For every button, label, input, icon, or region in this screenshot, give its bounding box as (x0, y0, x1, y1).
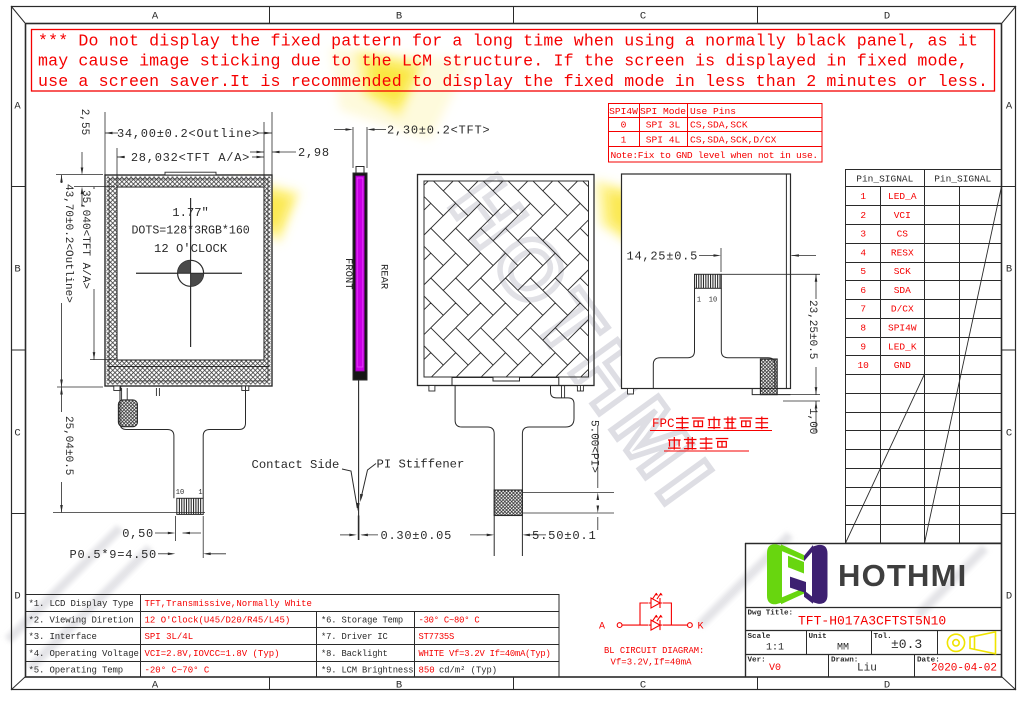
svg-text:10: 10 (857, 360, 869, 371)
svg-text:RESX: RESX (891, 247, 914, 258)
svg-text:C: C (1006, 428, 1012, 440)
svg-text:0,50: 0,50 (122, 527, 154, 541)
svg-text:Vf=3.2V,If=40mA: Vf=3.2V,If=40mA (611, 658, 693, 668)
svg-text:A: A (599, 622, 605, 633)
svg-text:SPI4W: SPI4W (609, 106, 638, 117)
svg-text:8: 8 (860, 323, 866, 334)
svg-text:*9. LCM Brightness: *9. LCM Brightness (321, 665, 413, 675)
svg-text:D: D (884, 680, 890, 692)
svg-text:SPI4W: SPI4W (888, 323, 917, 334)
svg-text:GND: GND (894, 360, 911, 371)
svg-text:*8. Backlight: *8. Backlight (321, 649, 388, 659)
svg-text:1: 1 (621, 135, 627, 146)
svg-text:23,25±0.5: 23,25±0.5 (806, 300, 818, 359)
svg-text:10: 10 (709, 297, 717, 305)
svg-text:MM: MM (837, 643, 849, 654)
svg-text:Scale: Scale (748, 633, 771, 641)
svg-text:B: B (14, 264, 20, 276)
svg-text:CS: CS (897, 229, 909, 240)
svg-text:SDA: SDA (894, 285, 911, 296)
svg-text:V0: V0 (769, 663, 781, 674)
svg-text:1: 1 (198, 489, 202, 497)
svg-text:Dwg Title:: Dwg Title: (748, 610, 794, 618)
svg-text:*** Do not display the fixed p: *** Do not display the fixed pattern for… (38, 32, 978, 51)
svg-text:BL CIRCUIT DIAGRAM:: BL CIRCUIT DIAGRAM: (604, 646, 704, 656)
svg-text:3: 3 (860, 229, 866, 240)
svg-text:Ver:: Ver: (748, 657, 766, 665)
svg-text:Use Pins: Use Pins (690, 106, 736, 117)
svg-text:2,98: 2,98 (298, 146, 330, 160)
svg-text:Drawn:: Drawn: (831, 657, 858, 665)
svg-text:5.00<PI>: 5.00<PI> (588, 420, 600, 473)
svg-text:FRONT: FRONT (342, 258, 354, 290)
svg-text:Note:Fix to GND level when not: Note:Fix to GND level when not in use. (611, 150, 818, 161)
svg-text:*6. Storage Temp: *6. Storage Temp (321, 616, 403, 626)
svg-text:SCK: SCK (894, 266, 911, 277)
svg-text:*5. Operating Temp: *5. Operating Temp (29, 665, 124, 675)
svg-text:14,25±0.5: 14,25±0.5 (627, 250, 699, 264)
svg-text:VCI: VCI (894, 210, 911, 221)
svg-text:A: A (152, 680, 159, 692)
svg-text:25,04±0.5: 25,04±0.5 (62, 416, 74, 475)
svg-text:B: B (396, 11, 402, 23)
svg-text:1,00: 1,00 (806, 408, 818, 434)
svg-text:cd/m² (Typ): cd/m² (Typ) (439, 665, 497, 675)
svg-text:0.30±0.05: 0.30±0.05 (381, 529, 453, 543)
svg-text:A: A (14, 101, 21, 113)
svg-text:850: 850 (419, 665, 435, 675)
svg-text:1: 1 (697, 297, 701, 305)
svg-text:LED_A: LED_A (888, 191, 917, 202)
svg-text:2020-04-02: 2020-04-02 (931, 663, 997, 675)
svg-text:4: 4 (860, 247, 866, 258)
svg-text:Unit: Unit (809, 633, 827, 641)
svg-text:*3. Interface: *3. Interface (29, 632, 97, 642)
svg-text:PI Stiffener: PI Stiffener (377, 458, 465, 472)
svg-text:12 O'Clock(U45/D20/R45/L45): 12 O'Clock(U45/D20/R45/L45) (145, 616, 291, 626)
svg-text:HOTHMI: HOTHMI (838, 558, 967, 593)
svg-text:Tol.: Tol. (874, 633, 892, 641)
svg-text:1:1: 1:1 (766, 643, 784, 654)
svg-text:VCI=2.8V,IOVCC=1.8V (Typ): VCI=2.8V,IOVCC=1.8V (Typ) (145, 649, 280, 659)
svg-text:7: 7 (860, 304, 866, 315)
svg-text:Contact Side: Contact Side (252, 458, 340, 472)
svg-text:SPI Mode: SPI Mode (640, 106, 686, 117)
svg-text:D/CX: D/CX (891, 304, 914, 315)
svg-text:C: C (640, 11, 646, 23)
svg-text:ST7735S: ST7735S (419, 632, 455, 642)
svg-text:10: 10 (176, 489, 184, 497)
svg-text:C: C (640, 680, 646, 692)
svg-text:5: 5 (860, 266, 866, 277)
svg-text:A: A (1006, 101, 1013, 113)
svg-text:Pin_SIGNAL: Pin_SIGNAL (934, 174, 991, 185)
svg-text:A: A (152, 11, 159, 23)
svg-text:SPI 3L: SPI 3L (646, 120, 681, 131)
svg-text:D: D (14, 591, 20, 603)
svg-text:28,032<TFT A/A>: 28,032<TFT A/A> (131, 151, 250, 165)
svg-text:9: 9 (860, 341, 866, 352)
svg-text:TFT,Transmissive,Normally Whit: TFT,Transmissive,Normally White (145, 599, 312, 609)
svg-text:±0.3: ±0.3 (891, 637, 922, 652)
svg-text:*2. Viewing Diretion: *2. Viewing Diretion (29, 616, 134, 626)
svg-text:P0.5*9=4.50: P0.5*9=4.50 (70, 548, 157, 562)
svg-text:D: D (884, 11, 890, 23)
svg-text:43,70±0.2<Outline>: 43,70±0.2<Outline> (62, 184, 74, 303)
svg-text:Liu: Liu (857, 663, 877, 675)
svg-text:*4. Operating Voltage: *4. Operating Voltage (29, 649, 139, 659)
svg-text:D: D (1006, 591, 1012, 603)
svg-text:Pin_SIGNAL: Pin_SIGNAL (856, 174, 913, 185)
svg-text:*1. LCD Display Type: *1. LCD Display Type (29, 599, 134, 609)
svg-text:2,30±0.2<TFT>: 2,30±0.2<TFT> (387, 124, 490, 138)
svg-text:*7. Driver IC: *7. Driver IC (321, 632, 388, 642)
svg-text:1: 1 (860, 191, 866, 202)
svg-text:TFT-H017A3CFTST5N10: TFT-H017A3CFTST5N10 (798, 614, 946, 629)
svg-text:SPI 3L/4L: SPI 3L/4L (145, 632, 194, 642)
svg-text:2,55: 2,55 (78, 109, 90, 135)
svg-text:34,00±0.2<Outline>: 34,00±0.2<Outline> (117, 127, 260, 141)
svg-text:REAR: REAR (378, 264, 390, 290)
svg-text:-30° C~80° C: -30° C~80° C (419, 616, 480, 626)
svg-text:2: 2 (860, 210, 866, 221)
svg-text:5.50±0.1: 5.50±0.1 (532, 529, 597, 543)
svg-text:B: B (396, 680, 402, 692)
svg-text:-20° C~70° C: -20° C~70° C (145, 665, 210, 675)
svg-text:C: C (14, 428, 20, 440)
svg-text:WHITE Vf=3.2V If=40mA(Typ): WHITE Vf=3.2V If=40mA(Typ) (419, 649, 551, 659)
svg-text:K: K (697, 622, 703, 633)
svg-text:use a screen saver.It is recom: use a screen saver.It is recommended to … (38, 72, 988, 91)
svg-text:LED_K: LED_K (888, 341, 917, 352)
svg-text:CS,SDA,SCK,D/CX: CS,SDA,SCK,D/CX (690, 135, 777, 146)
svg-text:35,040<TFT A/A>: 35,040<TFT A/A> (79, 190, 91, 289)
svg-text:B: B (1006, 264, 1012, 276)
svg-text:SPI 4L: SPI 4L (646, 135, 681, 146)
svg-text:0: 0 (621, 120, 627, 131)
svg-text:may cause image sticking due t: may cause image sticking due to the LCM … (38, 52, 968, 71)
svg-text:6: 6 (860, 285, 866, 296)
svg-text:FPC: FPC (652, 417, 675, 431)
svg-text:CS,SDA,SCK: CS,SDA,SCK (690, 120, 748, 131)
